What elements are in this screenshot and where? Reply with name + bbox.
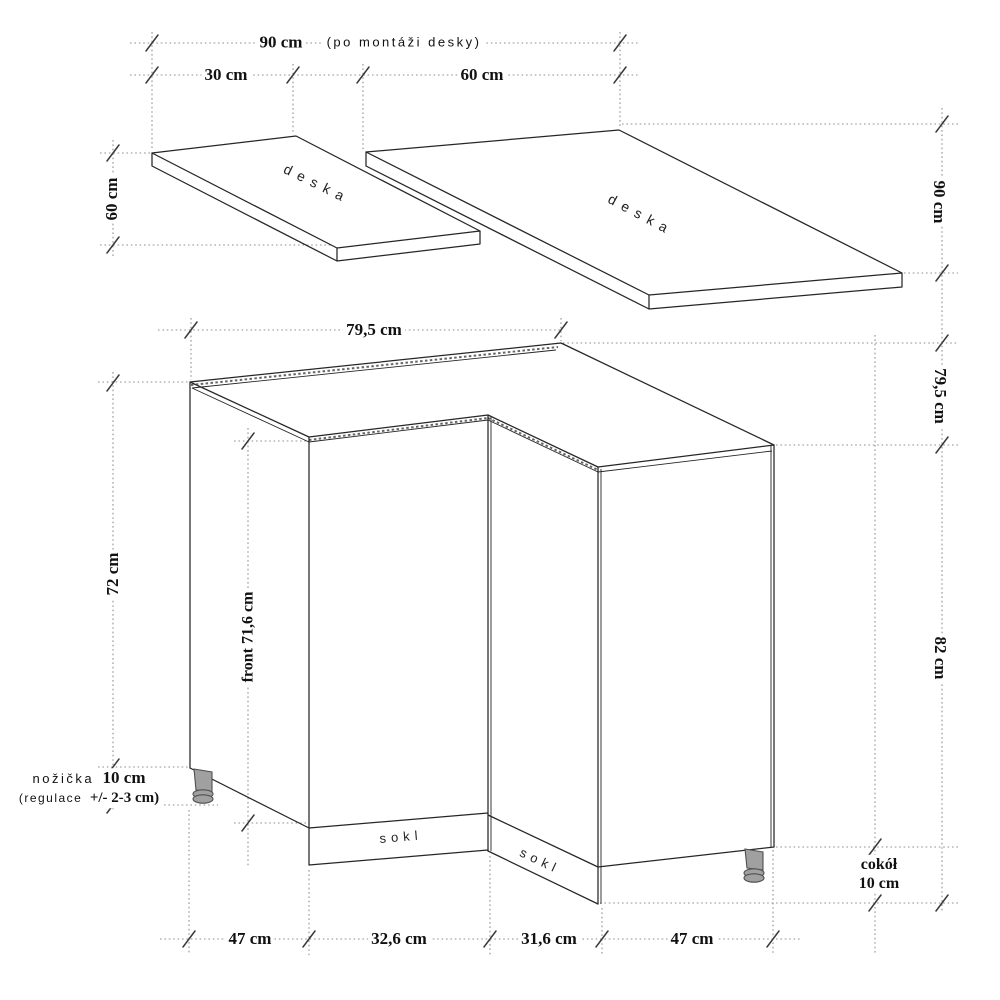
leg-name-label: nožička: [33, 771, 95, 786]
dim-total-height-label: 82 cm: [931, 634, 949, 683]
diagram-canvas: [0, 0, 1000, 1000]
left-leg-foot: [193, 795, 213, 803]
cabinet-leg-right: [744, 849, 764, 882]
dim-right-board-depth-label: 90 cm: [930, 178, 948, 227]
dim-bottom-right-door: 31,6 cm: [518, 930, 580, 948]
dim-bottom-left-door: 32,6 cm: [368, 930, 430, 948]
leg-height-value: 10 cm: [103, 768, 146, 787]
leg-dimension-note: nožička 10 cm (regulace +/- 2-3 cm): [16, 768, 162, 808]
leg-note-value: +/- 2-3 cm): [90, 791, 159, 807]
dim-cabinet-top-width-label: 79,5 cm: [343, 321, 405, 339]
corner-cabinet-diagram: 90 cm (po montáži desky) 30 cm 60 cm 60 …: [0, 0, 1000, 1000]
cabinet-top-face: [190, 343, 774, 467]
dim-front-height-label: front 71,6 cm: [241, 589, 258, 686]
dim-cabinet-top-depth-label: 79,5 cm: [931, 365, 949, 427]
countertop-section: [152, 130, 902, 309]
cabinet-vertical-edges: [190, 382, 774, 904]
left-leg-body: [194, 769, 212, 792]
dim-right-board-width-label: 60 cm: [458, 66, 507, 84]
cabinet-bottom-edges: [190, 768, 774, 904]
dim-left-board-width-label: 30 cm: [202, 66, 251, 84]
dim-carcass-height-label: 72 cm: [104, 550, 122, 599]
plinth-dim-line1: cokół: [859, 855, 899, 874]
dim-total-width-label: 90 cm: [257, 34, 306, 53]
dim-total-width-note: (po montáži desky): [324, 35, 485, 52]
cabinet-section: [190, 343, 774, 904]
leg-note-prefix: (regulace: [19, 792, 83, 806]
leg-note-line2: (regulace +/- 2-3 cm): [19, 789, 159, 808]
plinth-dim-line2: 10 cm: [859, 874, 899, 893]
plinth-dimension-note: cokół 10 cm: [856, 855, 902, 893]
dim-bottom-left-side: 47 cm: [226, 930, 275, 948]
leg-note-line1: nožička 10 cm: [19, 768, 159, 788]
dim-total-width-value: 90 cm: [260, 33, 303, 52]
right-leg-body: [745, 849, 763, 870]
dim-bottom-right-side: 47 cm: [668, 930, 717, 948]
cabinet-vertical-edges-inner: [491, 417, 771, 904]
dim-left-board-depth-label: 60 cm: [103, 175, 121, 224]
cabinet-leg-left: [193, 769, 213, 803]
right-leg-foot: [744, 874, 764, 882]
